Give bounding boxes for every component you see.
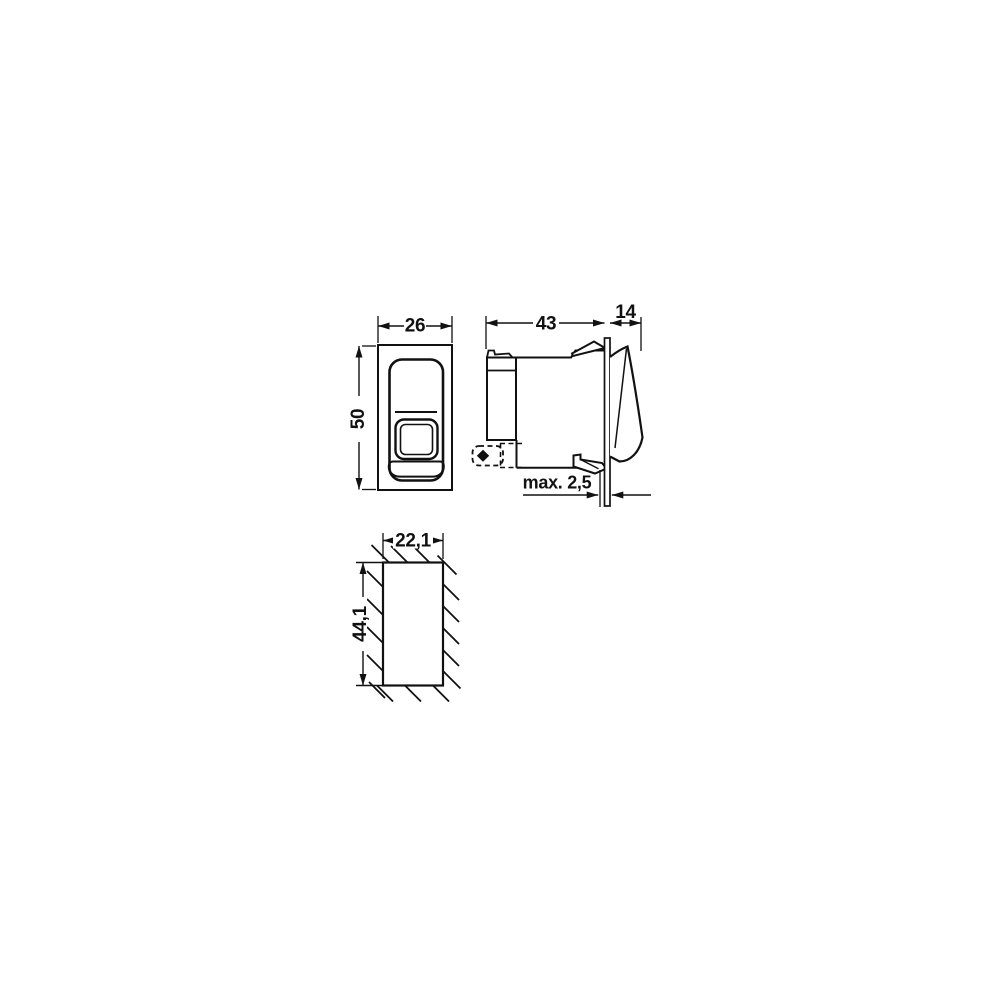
side-front-depth-label: 14 <box>615 302 636 323</box>
terminal-diamond-icon <box>477 450 489 462</box>
cutout-height-label: 44,1 <box>350 605 371 642</box>
panel-thickness-label: max. 2,5 <box>523 473 592 493</box>
front-width-label: 26 <box>405 316 426 337</box>
cutout-view: 22,1 44,1 <box>347 531 461 702</box>
front-view: 26 50 <box>346 316 452 491</box>
dimension-cutout-width: 22,1 <box>383 531 443 560</box>
cutout-rectangle <box>383 563 443 686</box>
panel-hatching <box>367 545 461 702</box>
dimension-panel-thickness: max. 2,5 <box>523 470 651 507</box>
cutout-width-label: 22,1 <box>395 531 432 552</box>
dimension-side-front-depth: 14 <box>610 302 641 351</box>
rocker-bottom-edge <box>389 462 444 477</box>
dimension-front-height: 50 <box>346 346 376 490</box>
mounting-clip-top <box>572 342 605 357</box>
dimension-front-width: 26 <box>378 316 452 344</box>
dimension-side-depth: 43 <box>486 314 605 350</box>
panel-flange <box>605 338 611 506</box>
side-view: 43 14 max. 2,5 <box>473 302 652 507</box>
dimension-cutout-height: 44,1 <box>347 563 371 686</box>
technical-drawing-page: 26 50 <box>0 0 1000 1000</box>
lens-window-inner <box>401 425 433 455</box>
side-depth-label: 43 <box>536 314 557 335</box>
cover-latch <box>487 351 513 358</box>
front-height-label: 50 <box>348 409 369 430</box>
rocker-switch-dimension-drawing: 26 50 <box>0 0 1000 1000</box>
